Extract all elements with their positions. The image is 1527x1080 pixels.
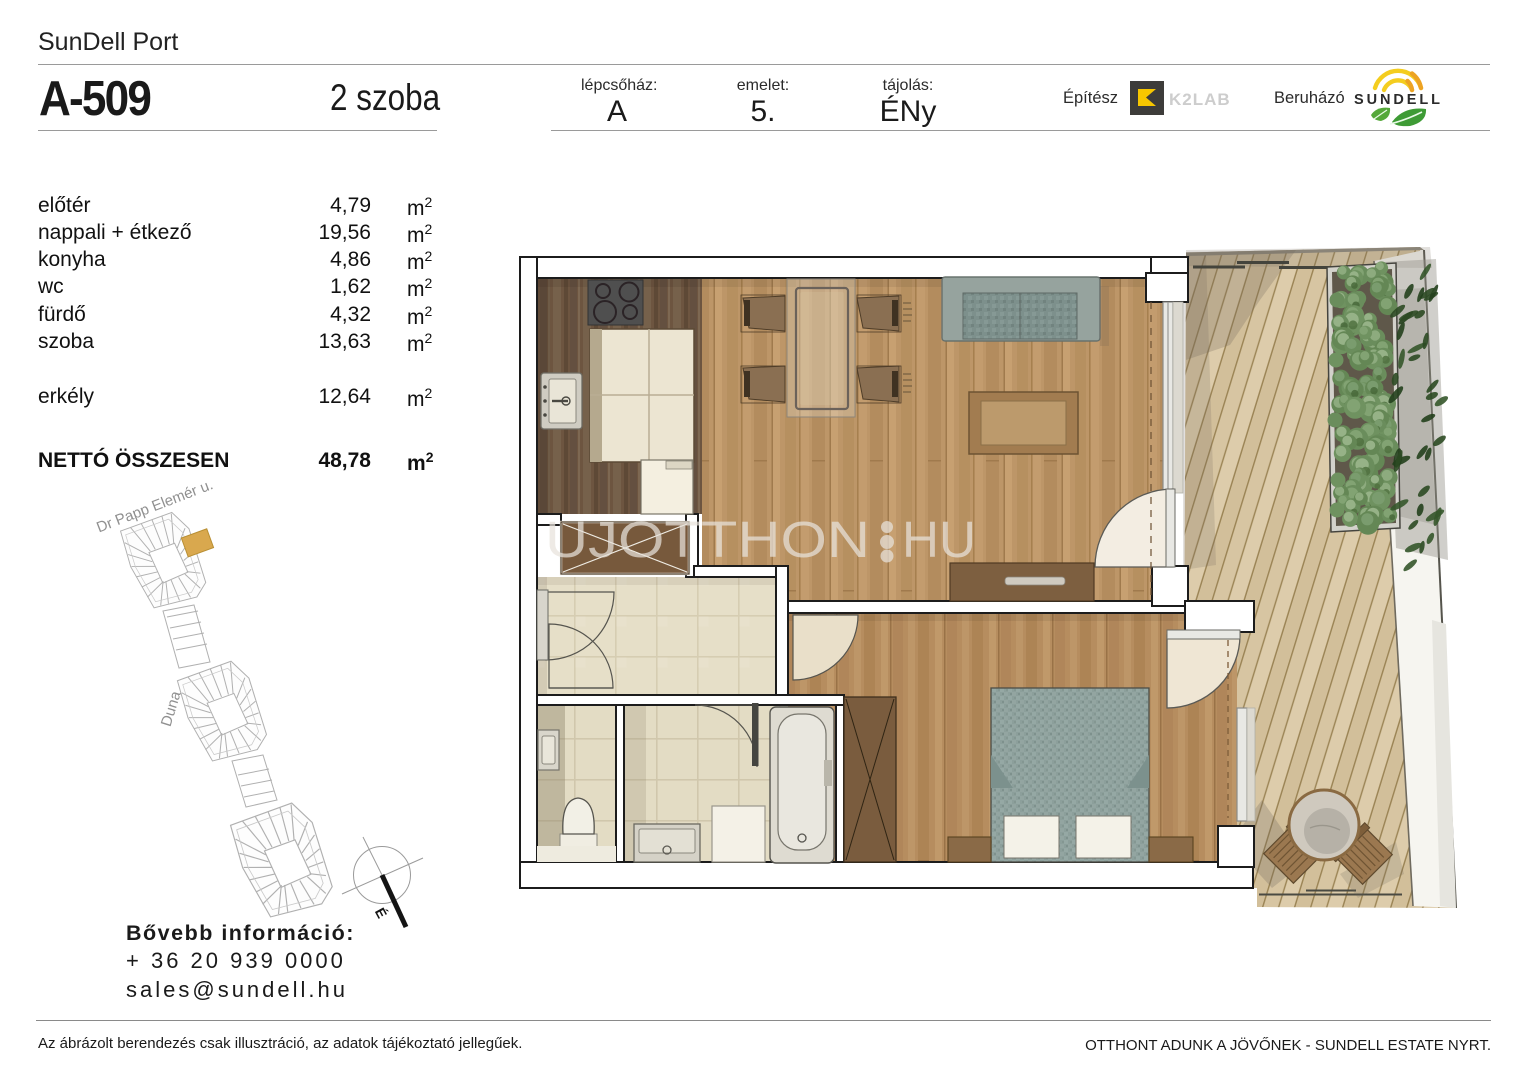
svg-text:SUNDELL: SUNDELL [1354, 92, 1446, 108]
svg-text:UJOTTHON: UJOTTHON [545, 511, 870, 568]
svg-text:K2LAB: K2LAB [1169, 90, 1229, 109]
svg-text:HU: HU [902, 511, 976, 568]
svg-text:Duna: Duna [158, 689, 185, 729]
svg-text:É: É [372, 905, 391, 921]
